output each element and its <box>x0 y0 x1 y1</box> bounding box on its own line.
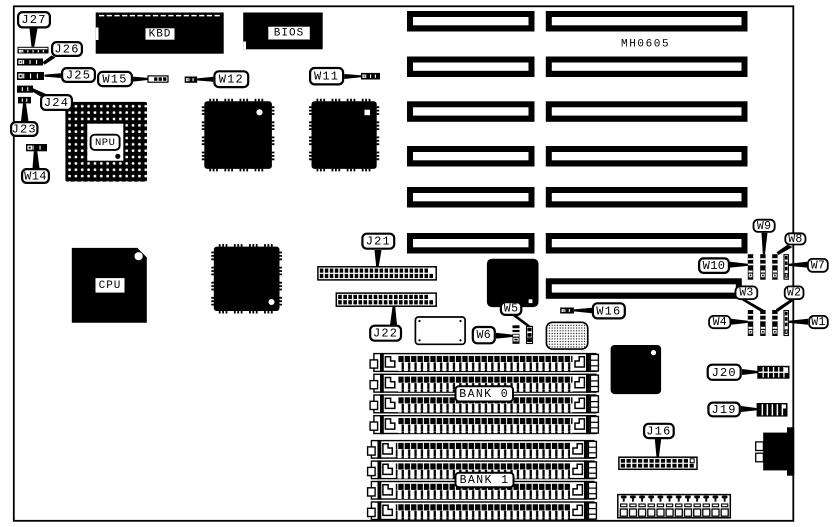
svg-text:J21: J21 <box>366 235 391 249</box>
svg-text:W8: W8 <box>788 233 802 246</box>
svg-text:W15: W15 <box>102 73 127 87</box>
svg-text:W5: W5 <box>504 303 519 316</box>
svg-text:CPU: CPU <box>99 280 122 292</box>
svg-text:BANK 0: BANK 0 <box>459 388 509 401</box>
svg-text:J22: J22 <box>373 327 398 341</box>
svg-text:W9: W9 <box>757 220 771 233</box>
svg-text:W11: W11 <box>314 70 339 84</box>
svg-text:W6: W6 <box>476 329 491 342</box>
svg-text:W2: W2 <box>787 287 801 300</box>
svg-text:J20: J20 <box>712 366 737 380</box>
svg-text:J26: J26 <box>54 43 79 57</box>
svg-text:J23: J23 <box>12 123 37 137</box>
svg-text:J25: J25 <box>66 69 91 83</box>
svg-text:W3: W3 <box>739 287 753 300</box>
svg-text:KBD: KBD <box>149 29 172 41</box>
svg-text:W16: W16 <box>596 304 621 318</box>
svg-text:J27: J27 <box>21 13 46 27</box>
svg-text:MH0605: MH0605 <box>621 39 670 51</box>
svg-text:W12: W12 <box>219 73 244 87</box>
svg-text:BIOS: BIOS <box>274 28 304 40</box>
svg-text:J19: J19 <box>711 403 736 417</box>
svg-text:J16: J16 <box>646 424 671 438</box>
svg-text:W1: W1 <box>811 316 825 329</box>
svg-text:J24: J24 <box>44 96 69 110</box>
svg-text:NPU: NPU <box>95 137 115 149</box>
svg-text:BANK 1: BANK 1 <box>460 474 510 487</box>
svg-text:W10: W10 <box>703 259 726 273</box>
svg-text:W7: W7 <box>811 259 825 272</box>
svg-text:W14: W14 <box>24 170 47 184</box>
svg-text:W4: W4 <box>713 316 727 329</box>
